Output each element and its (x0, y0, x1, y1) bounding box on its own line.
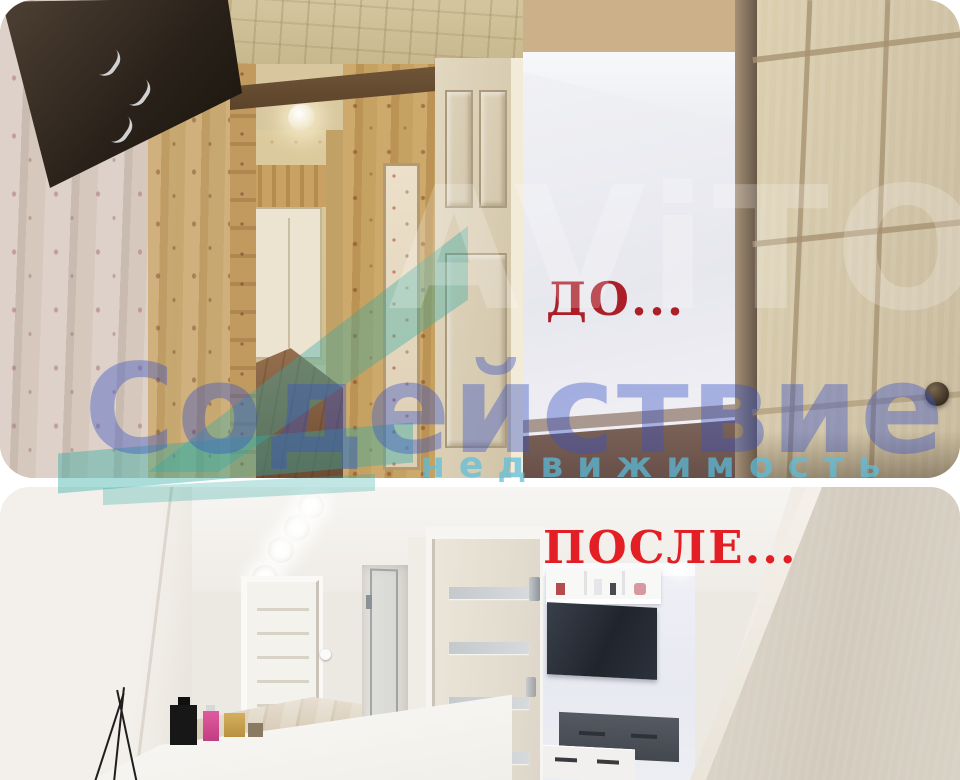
curtained-doorway (383, 163, 420, 470)
shelf-divider (622, 571, 625, 595)
after-label: ПОСЛЕ... (543, 521, 798, 574)
shelf-decor-item (610, 583, 616, 595)
room-ceiling (523, 52, 737, 124)
recessed-spotlight (268, 537, 294, 563)
tv-stand-white-drawers (543, 745, 635, 780)
old-tin-ceiling (230, 0, 523, 64)
door-stripe (257, 656, 309, 659)
door-knob (925, 382, 949, 406)
door-panel (445, 253, 507, 448)
door-panel (445, 90, 473, 208)
black-perfume-bottle (170, 705, 197, 745)
door-groove (869, 0, 891, 478)
old-cream-panel-door (435, 58, 525, 478)
pink-perfume-bottle (203, 711, 219, 741)
tv-room-through-doorway (543, 563, 695, 780)
door-stripe (257, 608, 309, 611)
door-hinge (529, 577, 540, 601)
recessed-spotlight (284, 515, 310, 541)
shelf-decor-item (556, 583, 565, 595)
after-photo: ПОСЛЕ... (0, 487, 960, 780)
door-bottom-shadow (757, 430, 960, 478)
glass-door-hinge (366, 595, 372, 609)
light-switch (320, 649, 331, 660)
before-label: ДО... (546, 272, 685, 326)
open-door-shadow-jamb (735, 0, 759, 478)
corridor-far-door (254, 207, 322, 359)
frosted-glass-stripe (449, 642, 529, 654)
door-stripe (257, 632, 309, 635)
bright-empty-room (523, 52, 737, 478)
ceiling-globe-lamp (288, 104, 315, 131)
property-photo-collage: ДО... (0, 0, 960, 780)
white-wall-shelf (546, 569, 661, 604)
small-cosmetic-jar (248, 723, 263, 737)
door-panel (479, 90, 507, 208)
old-open-panel-door (757, 0, 960, 478)
gold-perfume-bottle (224, 713, 245, 737)
shelf-decor-item (634, 583, 646, 595)
before-photo: ДО... (0, 0, 960, 478)
corridor-wallpaper-valance (248, 165, 332, 207)
door-stripe (257, 680, 309, 683)
door-hinge (526, 677, 536, 697)
door-groove (752, 219, 960, 247)
shelf-divider (584, 571, 587, 595)
white-left-wall (0, 487, 192, 780)
door-groove (752, 31, 960, 63)
wall-mounted-tv (547, 602, 657, 680)
shelf-decor-item (594, 579, 602, 595)
frosted-glass-stripe (449, 587, 529, 599)
